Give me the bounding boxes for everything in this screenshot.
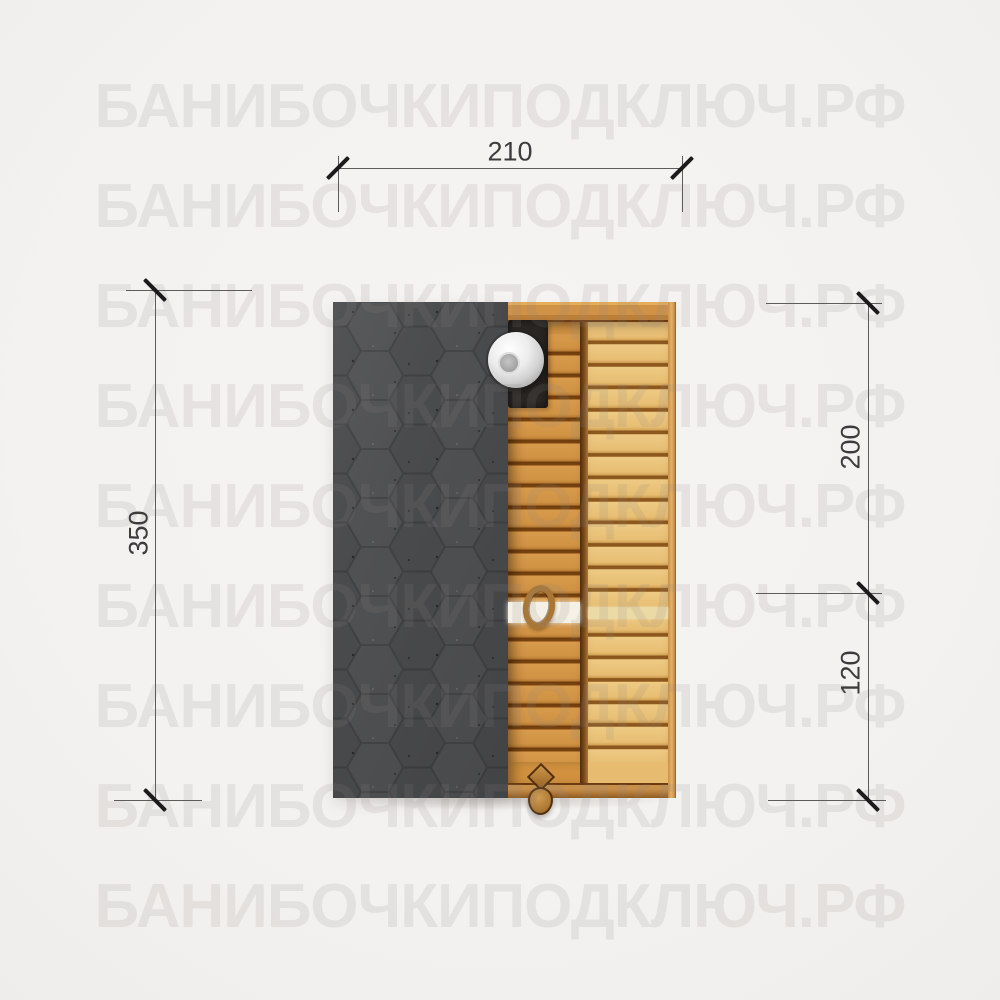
- bottom-plank-right: [588, 762, 668, 785]
- light-band-right: [588, 607, 668, 619]
- wood-top-rim: [508, 302, 676, 322]
- sauna-topview-drawing: БАНИБОЧКИПОДКЛЮЧ.РФБАНИБОЧКИПОДКЛЮЧ.РФБА…: [0, 0, 1000, 1000]
- sauna-structure: [0, 0, 1000, 1000]
- wood-right-rim: [668, 302, 676, 798]
- door-knob-drop: [528, 787, 553, 815]
- chimney-pipe-hole-icon: [498, 352, 520, 374]
- roof-lighting-overlay: [333, 302, 508, 798]
- plank-divider: [580, 322, 588, 798]
- plank-column-right: [588, 322, 668, 798]
